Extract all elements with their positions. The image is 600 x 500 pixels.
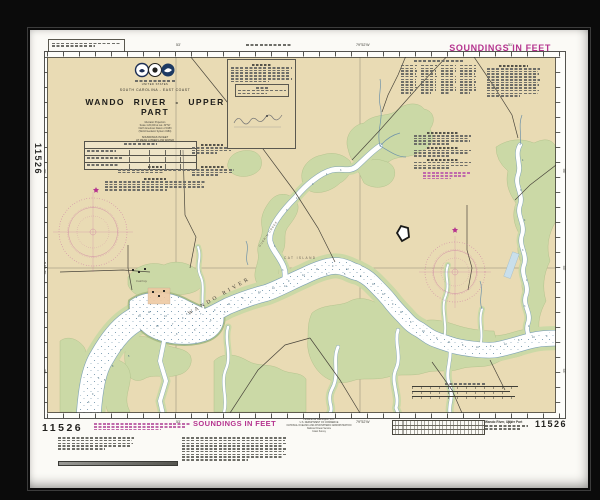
abbreviations-block — [401, 59, 476, 95]
caution-box — [227, 59, 296, 149]
country-label: UNITED STATES — [82, 83, 228, 86]
coordinate-label: 53' — [176, 43, 181, 47]
authorities-block — [105, 176, 205, 192]
projection-note: Mercator Projection Scale 1:20,000 at La… — [82, 121, 228, 133]
svg-text:55': 55' — [562, 266, 566, 271]
notes-paragraphs — [414, 130, 471, 170]
region-label: SOUTH CAROLINA - EAST COAST — [82, 88, 228, 92]
soundings-in-feet-bottom: SOUNDINGS IN FEET — [193, 419, 276, 428]
pod-disclaimer — [182, 436, 288, 462]
chart-number-bottom-right: 11526 — [535, 419, 567, 429]
coordinate-label: 51' — [508, 420, 513, 424]
agency-seals — [134, 62, 176, 79]
coordinate-label: 79°52'W — [356, 43, 370, 47]
coordinate-label: 79°52'W — [356, 420, 370, 424]
chart-number-vertical: 11526 — [33, 143, 43, 175]
edition-note-text — [52, 43, 121, 47]
svg-text:56': 56' — [562, 169, 566, 174]
note-block — [118, 164, 192, 174]
right-note-block — [487, 63, 540, 98]
chart-title: WANDO RIVER - UPPER PART — [82, 97, 228, 117]
svg-text:54': 54' — [44, 368, 47, 373]
framed-nautical-chart: { "chart_number": "11526", "soundings_no… — [0, 0, 600, 500]
coordinate-label: 51' — [508, 43, 513, 47]
coordinate-label: 53' — [176, 420, 181, 424]
reference-bar — [58, 461, 178, 466]
small-note-2 — [192, 164, 234, 177]
small-note-1 — [192, 142, 232, 155]
locator-inset-map — [231, 99, 285, 131]
matte: 11526 SOUNDINGS IN FEET — [30, 30, 588, 488]
svg-text:54': 54' — [562, 369, 566, 374]
publisher-block: Published at Washington, D.C. U.S. DEPAR… — [282, 419, 356, 434]
svg-text:32°55'N: 32°55'N — [44, 261, 47, 274]
chart-number-bottom-left: 11526 — [42, 422, 83, 434]
bottom-left-note — [58, 436, 134, 451]
place-name-label: Cainhoy — [136, 279, 148, 283]
top-center-note — [246, 43, 292, 47]
island-name-label: CAT ISLAND — [284, 256, 316, 260]
magenta-note — [423, 171, 470, 181]
svg-text:56': 56' — [44, 168, 47, 173]
graphic-scales — [412, 382, 518, 399]
logarithmic-speed-scale — [392, 420, 485, 435]
scale-sub-box — [235, 84, 289, 97]
title-block: UNITED STATES SOUTH CAROLINA - EAST COAS… — [82, 62, 228, 143]
